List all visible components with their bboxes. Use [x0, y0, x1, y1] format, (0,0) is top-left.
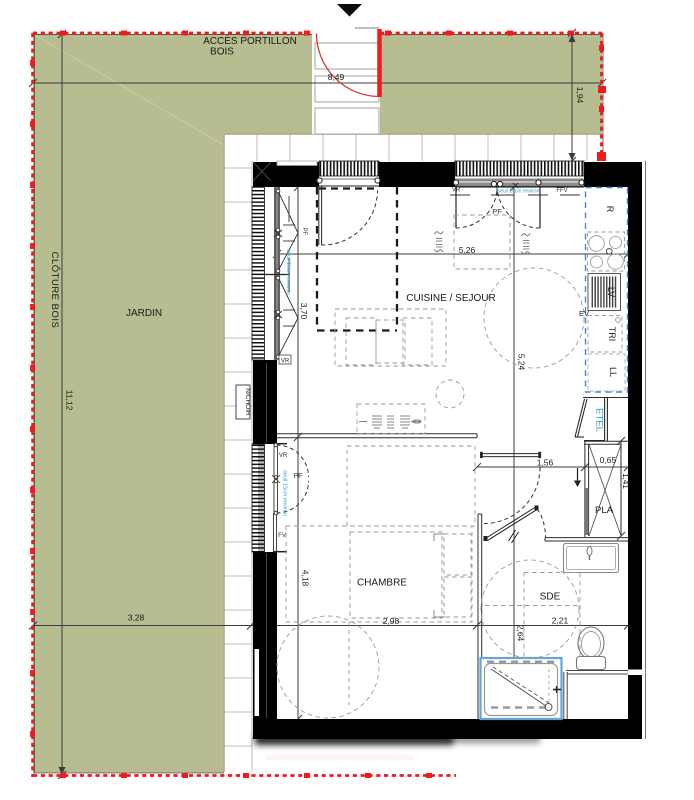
svg-text:ACCÈS PORTILLON: ACCÈS PORTILLON	[203, 34, 297, 47]
svg-text:SDE: SDE	[540, 592, 561, 603]
svg-text:seuil 15cm environ: seuil 15cm environ	[282, 470, 288, 516]
svg-text:4,18: 4,18	[301, 570, 311, 587]
svg-text:NICHOIR: NICHOIR	[244, 388, 251, 416]
svg-text:TRI: TRI	[607, 327, 617, 342]
svg-text:VR: VR	[279, 453, 288, 459]
svg-text:2,98: 2,98	[383, 616, 400, 626]
svg-text:VR: VR	[452, 188, 461, 194]
svg-text:5,24: 5,24	[517, 354, 527, 371]
svg-text:PF: PF	[492, 207, 502, 216]
svg-text:VR: VR	[281, 359, 290, 365]
svg-text:1,56: 1,56	[537, 458, 554, 468]
svg-text:C: C	[604, 248, 614, 255]
svg-text:CUISINE / SEJOUR: CUISINE / SEJOUR	[406, 293, 495, 304]
svg-text:LV: LV	[606, 287, 616, 297]
svg-text:JARDIN: JARDIN	[126, 308, 162, 319]
svg-text:CLÔTURE BOIS: CLÔTURE BOIS	[49, 252, 60, 329]
svg-text:PF: PF	[301, 228, 307, 236]
svg-text:R: R	[605, 206, 615, 213]
svg-text:8,49: 8,49	[328, 72, 345, 82]
svg-text:PF: PF	[294, 473, 303, 480]
svg-text:1,41: 1,41	[621, 473, 630, 489]
svg-text:FFV: FFV	[556, 188, 567, 194]
svg-text:1,94: 1,94	[575, 87, 585, 104]
svg-text:11,12: 11,12	[65, 390, 75, 411]
svg-text:2,64: 2,64	[516, 625, 526, 642]
svg-text:seuil 15cm environ: seuil 15cm environ	[285, 249, 291, 295]
svg-text:5,26: 5,26	[459, 245, 476, 255]
svg-text:ETEL: ETEL	[594, 408, 605, 432]
svg-text:3,28: 3,28	[128, 613, 145, 623]
svg-text:PLA: PLA	[595, 505, 614, 516]
svg-text:3,70: 3,70	[299, 303, 309, 320]
svg-text:EV: EV	[579, 309, 589, 318]
svg-text:CHAMBRE: CHAMBRE	[357, 578, 407, 589]
svg-text:FV: FV	[278, 533, 286, 539]
svg-text:seuil 15cm environ: seuil 15cm environ	[498, 189, 540, 195]
svg-text:LL: LL	[608, 367, 618, 377]
svg-text:BOIS: BOIS	[210, 47, 234, 58]
svg-text:2,21: 2,21	[552, 616, 569, 626]
svg-text:0,65: 0,65	[600, 455, 617, 465]
